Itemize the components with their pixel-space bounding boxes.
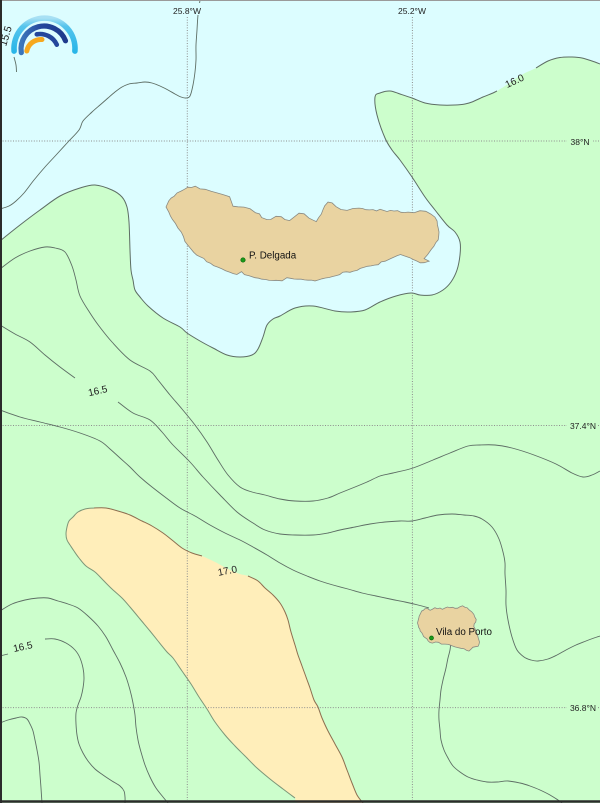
svg-text:25.2°W: 25.2°W — [398, 6, 426, 16]
svg-text:38°N: 38°N — [571, 137, 590, 147]
svg-text:37.4°N: 37.4°N — [570, 421, 596, 431]
svg-text:25.8°W: 25.8°W — [173, 6, 201, 16]
svg-text:Vila do Porto: Vila do Porto — [436, 627, 492, 638]
svg-text:P. Delgada: P. Delgada — [249, 251, 297, 262]
svg-text:36.8°N: 36.8°N — [570, 703, 596, 713]
